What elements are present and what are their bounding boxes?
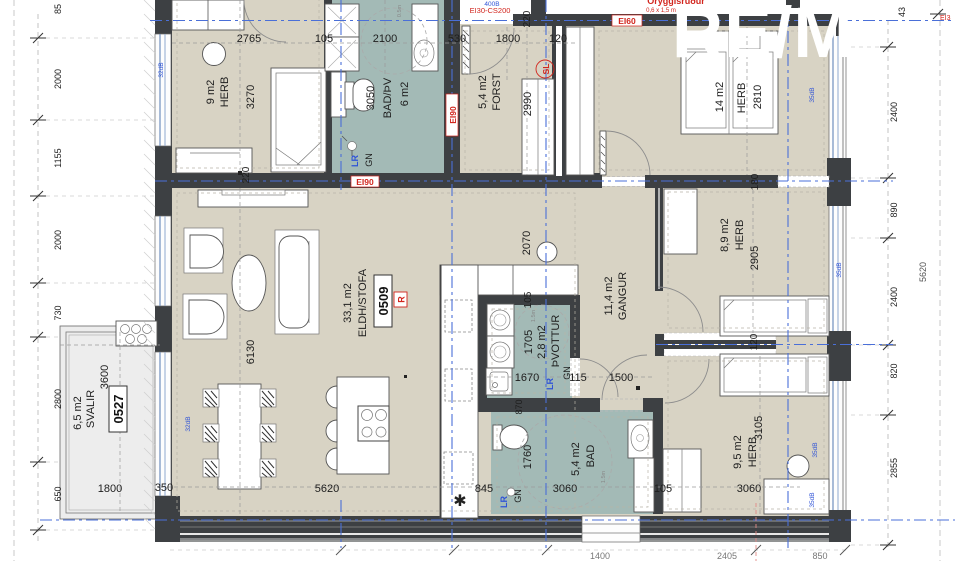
svg-text:RE/M: RE/M (672, 0, 854, 73)
svg-text:1500: 1500 (609, 372, 633, 384)
svg-text:3060: 3060 (737, 483, 761, 495)
svg-text:1155: 1155 (53, 148, 63, 167)
svg-text:GANGUR: GANGUR (617, 272, 629, 320)
svg-text:35dB: 35dB (809, 492, 816, 507)
svg-text:120: 120 (549, 33, 567, 45)
svg-text:EI3: EI3 (940, 15, 951, 22)
svg-text:2100: 2100 (373, 33, 397, 45)
svg-text:SL: SL (541, 64, 551, 75)
svg-text:14 m2: 14 m2 (714, 82, 726, 113)
svg-text:5,4 m2: 5,4 m2 (477, 75, 489, 109)
svg-text:2000: 2000 (53, 230, 63, 250)
svg-text:11,4 m2: 11,4 m2 (603, 277, 615, 316)
svg-text:43: 43 (897, 7, 907, 17)
svg-text:33,1 m2: 33,1 m2 (342, 283, 354, 323)
svg-text:2,8 m2: 2,8 m2 (536, 325, 548, 359)
svg-text:105: 105 (654, 483, 672, 495)
svg-text:EI90: EI90 (356, 177, 374, 187)
svg-text:35dB: 35dB (812, 442, 819, 457)
svg-text:LR: LR (545, 378, 555, 390)
svg-text:6130: 6130 (245, 340, 257, 364)
svg-text:GN: GN (364, 153, 374, 167)
svg-text:6,5 m2: 6,5 m2 (72, 396, 84, 430)
svg-text:1.5m: 1.5m (531, 309, 537, 322)
svg-text:BAD/ÞV: BAD/ÞV (382, 77, 394, 118)
svg-text:2000: 2000 (53, 69, 63, 89)
svg-text:1400: 1400 (590, 551, 610, 561)
svg-text:LR: LR (350, 155, 360, 167)
svg-text:1670: 1670 (515, 372, 539, 384)
svg-text:2400: 2400 (889, 287, 899, 307)
svg-text:0509: 0509 (376, 287, 391, 316)
svg-text:220: 220 (522, 10, 533, 27)
svg-text:35dB: 35dB (809, 87, 816, 102)
svg-text:105: 105 (523, 291, 534, 308)
svg-text:GN: GN (513, 489, 523, 503)
svg-text:350: 350 (155, 482, 173, 494)
svg-text:1705: 1705 (523, 330, 535, 354)
svg-text:32dB: 32dB (185, 416, 192, 431)
svg-text:845: 845 (475, 483, 493, 495)
svg-text:9 m2: 9 m2 (205, 80, 217, 104)
svg-text:5620: 5620 (315, 483, 339, 495)
svg-text:EI30-CS200: EI30-CS200 (470, 6, 511, 15)
svg-text:EI60: EI60 (618, 16, 636, 26)
svg-text:HERB: HERB (734, 220, 746, 251)
svg-text:730: 730 (53, 305, 63, 320)
svg-text:180: 180 (750, 173, 761, 190)
svg-text:3050: 3050 (365, 86, 377, 110)
svg-text:1800: 1800 (496, 33, 520, 45)
svg-text:35dB: 35dB (836, 262, 843, 277)
svg-text:2400: 2400 (889, 102, 899, 122)
svg-text:0527: 0527 (111, 395, 126, 424)
svg-text:ELDH/STOFA: ELDH/STOFA (357, 268, 369, 337)
svg-text:0.5m: 0.5m (397, 4, 403, 17)
svg-text:2810: 2810 (752, 85, 764, 109)
svg-text:850: 850 (812, 551, 827, 561)
svg-text:2905: 2905 (749, 246, 761, 270)
svg-text:ÞVOTTUR: ÞVOTTUR (550, 315, 562, 368)
svg-text:1800: 1800 (98, 483, 122, 495)
svg-text:890: 890 (889, 202, 899, 217)
svg-text:HERB: HERB (219, 77, 231, 108)
svg-text:870: 870 (514, 399, 524, 414)
svg-text:3060: 3060 (553, 483, 577, 495)
svg-text:FORST: FORST (491, 73, 503, 111)
svg-text:32dB: 32dB (158, 62, 165, 77)
svg-text:8,9 m2: 8,9 m2 (719, 218, 731, 252)
svg-text:2765: 2765 (237, 33, 261, 45)
svg-text:9,5 m2: 9,5 m2 (732, 435, 744, 469)
svg-text:5620: 5620 (918, 262, 928, 282)
svg-text:✱: ✱ (453, 493, 466, 510)
svg-text:SVALIR: SVALIR (85, 390, 97, 428)
svg-text:2405: 2405 (717, 551, 737, 561)
svg-text:85: 85 (53, 4, 63, 14)
svg-text:1.5m: 1.5m (601, 470, 607, 483)
svg-text:2855: 2855 (889, 458, 899, 478)
svg-text:LR: LR (499, 496, 509, 508)
svg-text:2800: 2800 (53, 389, 63, 409)
svg-text:R: R (397, 296, 407, 303)
svg-text:5,4 m2: 5,4 m2 (570, 442, 582, 476)
svg-text:HERB: HERB (747, 437, 759, 468)
svg-text:820: 820 (889, 363, 899, 378)
svg-text:3270: 3270 (245, 85, 257, 109)
svg-text:EI90: EI90 (448, 106, 458, 124)
svg-text:105: 105 (315, 33, 333, 45)
svg-text:2990: 2990 (522, 92, 534, 116)
svg-text:650: 650 (53, 486, 63, 501)
svg-text:120: 120 (749, 333, 760, 350)
svg-text:6 m2: 6 m2 (399, 82, 411, 106)
svg-text:220: 220 (241, 166, 252, 183)
svg-text:BAD: BAD (585, 445, 597, 468)
svg-text:530: 530 (448, 33, 466, 45)
svg-text:2070: 2070 (521, 231, 533, 255)
svg-text:3105: 3105 (753, 416, 765, 440)
svg-text:GN: GN (562, 366, 572, 380)
svg-text:1760: 1760 (522, 445, 534, 469)
svg-text:HERB: HERB (736, 83, 748, 114)
